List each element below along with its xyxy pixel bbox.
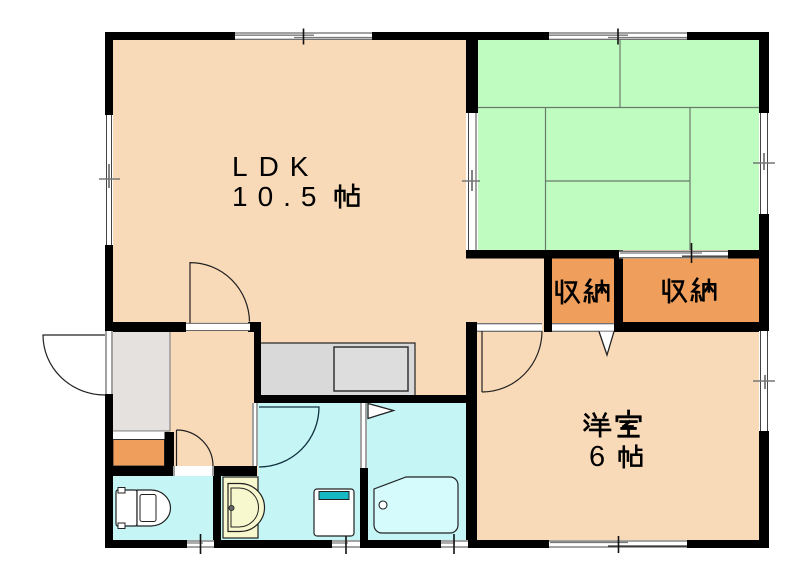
svg-text:LDK: LDK bbox=[232, 151, 319, 182]
svg-text:10.5: 10.5 bbox=[232, 181, 327, 212]
svg-text:6: 6 bbox=[589, 441, 605, 473]
